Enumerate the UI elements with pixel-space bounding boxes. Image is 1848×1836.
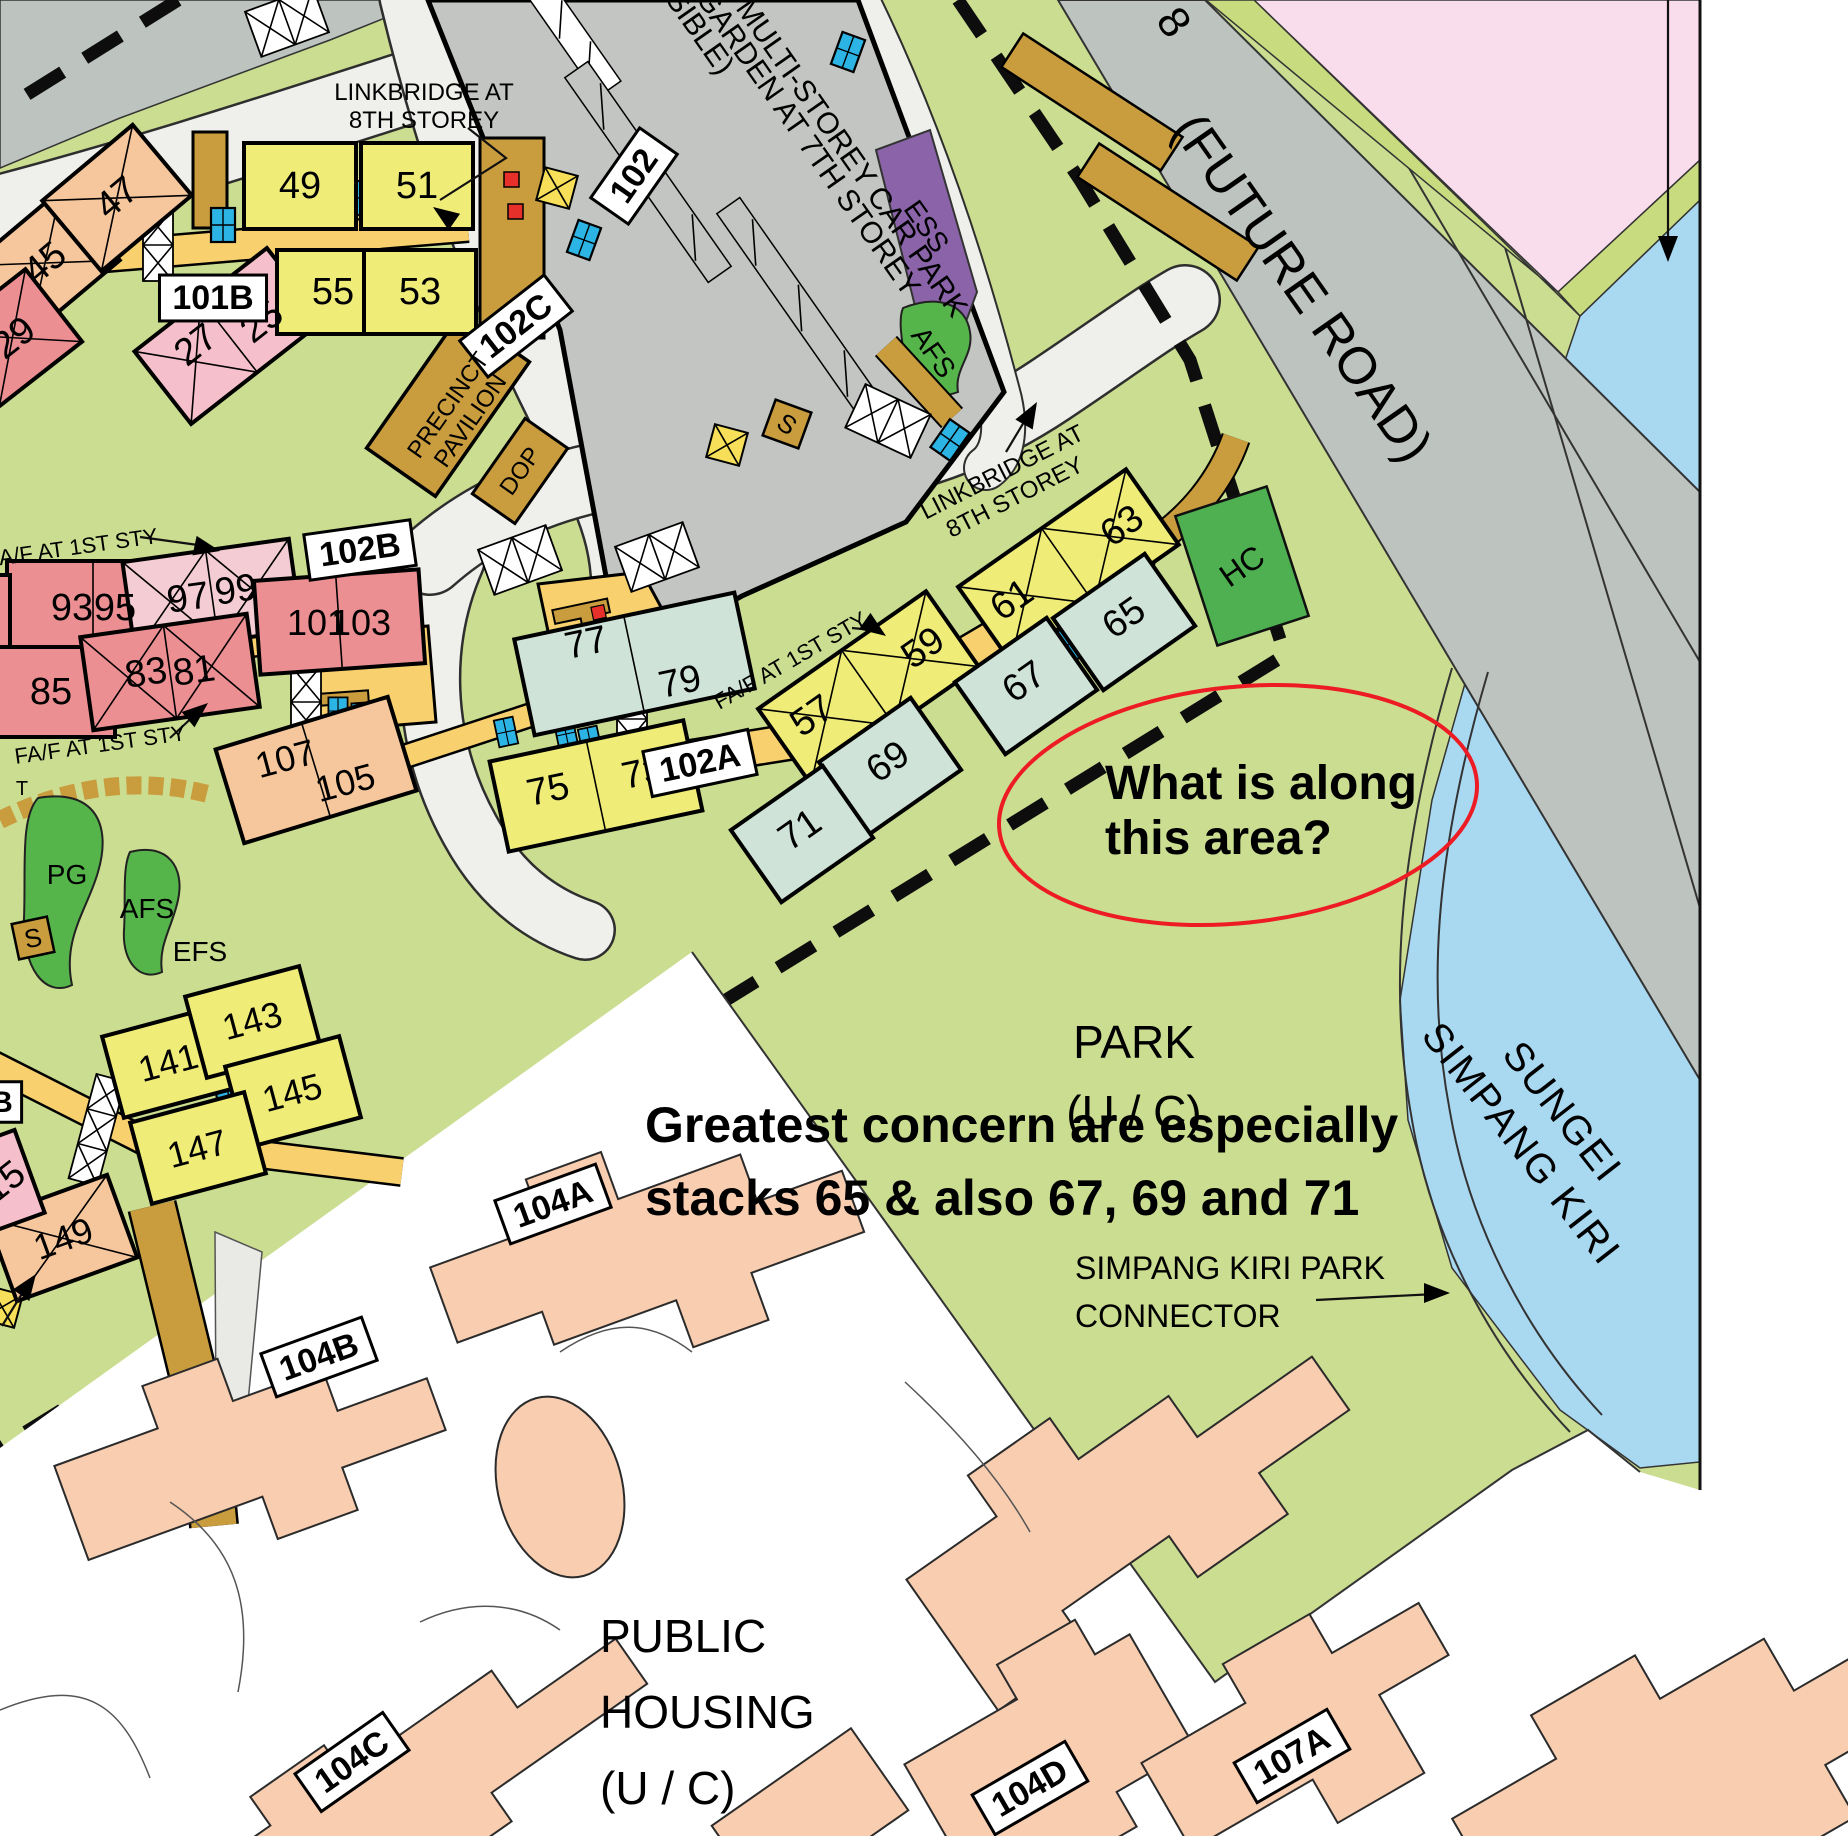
stack-95: 95 xyxy=(94,587,136,629)
svg-text:85: 85 xyxy=(30,671,72,713)
stack-49: 49 xyxy=(279,165,321,207)
svg-text:75: 75 xyxy=(523,765,573,815)
stack-97: 97 xyxy=(164,574,212,621)
lbl-pg: PG xyxy=(47,859,87,890)
svg-text:T: T xyxy=(16,778,28,800)
lbl-afs-left: AFS xyxy=(120,893,174,924)
stack-77: 77 xyxy=(561,618,611,668)
svg-text:83: 83 xyxy=(122,649,170,696)
svg-text:EFS: EFS xyxy=(173,936,227,967)
stack-51: 51 xyxy=(396,165,438,207)
svg-text:103: 103 xyxy=(331,602,391,643)
block-B-partial: B xyxy=(0,1082,22,1123)
svg-text:49: 49 xyxy=(279,165,321,207)
lbl-linkbridge-top: LINKBRIDGE AT8TH STOREY xyxy=(334,79,514,134)
svg-text:95: 95 xyxy=(94,587,136,629)
lbl-t: T xyxy=(16,778,28,800)
block-101B: 101B xyxy=(159,275,266,321)
svg-text:97: 97 xyxy=(164,574,212,621)
stack-75: 75 xyxy=(523,765,573,815)
stack-103: 103 xyxy=(331,602,391,643)
svg-text:99: 99 xyxy=(212,566,260,613)
svg-text:79: 79 xyxy=(655,657,705,707)
svg-text:LINKBRIDGE AT8TH STOREY: LINKBRIDGE AT8TH STOREY xyxy=(334,79,514,134)
svg-text:53: 53 xyxy=(399,271,441,313)
map-right-margin xyxy=(1700,0,1848,1492)
svg-text:51: 51 xyxy=(396,165,438,207)
stack-85: 85 xyxy=(30,671,72,713)
svg-text:81: 81 xyxy=(170,647,218,694)
stack-99: 99 xyxy=(212,566,260,613)
svg-text:55: 55 xyxy=(312,271,354,313)
site-plan-map: 4547292725495155539395979910110385838110… xyxy=(0,0,1848,1836)
svg-text:93: 93 xyxy=(51,587,93,629)
stack-55: 55 xyxy=(312,271,354,313)
svg-text:101B: 101B xyxy=(172,279,253,317)
stack-79: 79 xyxy=(655,657,705,707)
svg-text:B: B xyxy=(0,1086,13,1119)
lbl-efs: EFS xyxy=(173,936,227,967)
stack-53: 53 xyxy=(399,271,441,313)
svg-text:AFS: AFS xyxy=(120,893,174,924)
stack-81: 81 xyxy=(170,647,218,694)
svg-text:PG: PG xyxy=(47,859,87,890)
stack-83: 83 xyxy=(122,649,170,696)
svg-text:77: 77 xyxy=(561,618,611,668)
stack-93: 93 xyxy=(51,587,93,629)
